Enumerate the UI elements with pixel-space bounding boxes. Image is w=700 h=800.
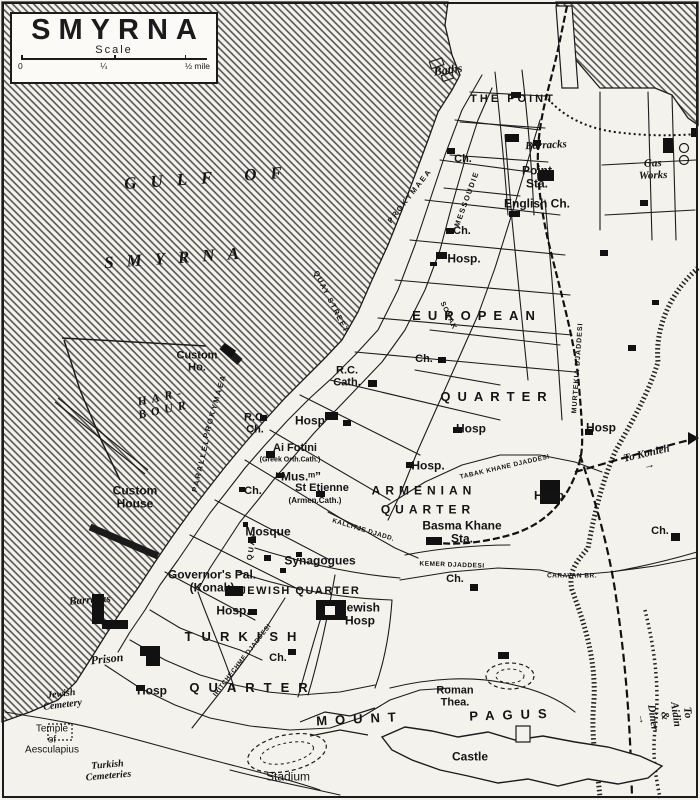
synagogues-label: Synagogues (284, 555, 355, 568)
pagus-label: PAGUS (469, 707, 555, 724)
tabak-khane-street-label: TABAK KHANE DJADDESI (459, 454, 550, 481)
european-quarter-label: QUARTER (440, 390, 553, 404)
custom-house-label: Custom House (113, 484, 158, 509)
church-2-label: Ch. (453, 226, 471, 238)
church-5-label: Ch. (651, 526, 669, 538)
turkish-label: TURKISH (185, 630, 306, 644)
hospital-8-label: Hosp (137, 685, 167, 698)
to-konieh-label: To Konieh → (620, 443, 676, 477)
prokymaea-south-street-label: PROKYMAEA (202, 373, 228, 439)
title-box: SMYRNA Scale 0 ¼ ½ mile (10, 12, 218, 84)
scale-tick-zero: 0 (18, 62, 23, 71)
barracks-point-label: Barracks (525, 139, 567, 153)
temple-aesculapius-label: Temple of Aesculapius (25, 724, 79, 756)
hospital-3-label: Hosp (456, 423, 486, 436)
jewish-hospital-label: Jewish Hosp (340, 601, 380, 626)
mosque-label: Mosque (245, 526, 290, 539)
hospital-2-label: Hosp (295, 415, 325, 428)
sokak-street-label: SOKAK (438, 301, 457, 332)
rc-church-label: R.C. Ch. (244, 412, 266, 435)
church-3-label: Ch. (415, 354, 433, 366)
kemer-street-label: KEMER DJADDESI (419, 561, 484, 570)
turkish-cemeteries-label: Turkish Cemeteries (84, 759, 131, 784)
museum-label: “Mus.ᵐ” (275, 471, 321, 484)
barracks-left-label: Barracks (69, 594, 111, 608)
custom-ho-label: Custom Ho. (177, 350, 218, 373)
armenian-label: ARMENIAN (372, 485, 477, 498)
armenian-quarter-label: QUARTER (381, 504, 475, 517)
basma-khane-label: Basma Khane Sta. (422, 519, 501, 544)
smyrna-map: GULF OFSMYRNABathsTHE POINTBarracksCh.Po… (0, 0, 700, 800)
turkish-quarter-label: QUARTER (189, 681, 316, 695)
church-point-label: Ch. (454, 154, 472, 166)
st-etienne-label: St Etienne (295, 483, 349, 495)
harbour-label: HAR- BOUR (134, 385, 191, 421)
hospital-6-label: Hosp (534, 490, 564, 503)
baths-label: Baths (433, 62, 463, 78)
castle-label: Castle (452, 751, 488, 764)
prison-label: Prison (90, 651, 124, 667)
scale-ticks: 0 ¼ ½ mile (18, 62, 210, 71)
church-6-label: Ch. (269, 653, 287, 665)
quay-street-vertical-label: QUAY (246, 531, 259, 561)
murtekia-street-label: MURTEKIA DJADDESI (571, 322, 585, 413)
prokymaea-north-street-label: PROKYMAEA (386, 167, 433, 224)
roman-theatre-label: Roman Thea. (436, 685, 473, 708)
church-7-label: Ch. (446, 574, 464, 586)
gas-works-label: Gas Works (638, 158, 667, 182)
mount-label: MOUNT (316, 710, 404, 728)
stadium-label: Stadium (266, 771, 310, 784)
scale-tick-half: ½ mile (185, 62, 210, 71)
rc-cathedral-label: R.C. Cath. (333, 365, 361, 388)
st-etienne-sub-label: (Armen.Cath.) (289, 497, 342, 505)
hospital-5-label: Hosp. (411, 460, 444, 473)
ai-fotini-sub-label: (Greek Orth.Cath.) (260, 456, 321, 463)
european-label: EUROPEAN (412, 309, 542, 323)
church-4-label: Ch. (244, 486, 262, 498)
governors-palace-label: Governor's Pal. (Konak) (168, 568, 256, 593)
english-church-label: English Ch. (504, 198, 570, 211)
quay-street-label: QUAY STREET (312, 269, 350, 334)
the-point-label: THE POINT (470, 94, 556, 106)
messoudie-street-label: MESSOUDIE (453, 170, 480, 228)
scale-bar (21, 58, 207, 63)
hospital-1-label: Hosp. (447, 253, 480, 266)
scale-tick-quarter: ¼ (100, 62, 107, 71)
gulf-of-label: GULF OF (124, 163, 297, 193)
to-aidin-label: To Aidin & Diner → (633, 694, 695, 738)
map-title: SMYRNA (23, 16, 205, 45)
gulf-smyrna-label: SMYRNA (104, 244, 253, 272)
point-station-label: Point Sta. (522, 164, 552, 189)
hospital-7-label: Hosp. (216, 605, 249, 618)
caravan-bridge-label: CARAVAN BR. (547, 574, 597, 581)
kallitje-street-label: KALLITJE DJADD. (331, 518, 395, 543)
label-layer: GULF OFSMYRNABathsTHE POINTBarracksCh.Po… (0, 0, 700, 800)
iritchechme-street-label: IRITCHECHME DJADDESI (213, 624, 274, 699)
jewish-quarter-label: JEWISH QUARTER (240, 586, 361, 598)
ai-fotini-label: Ai Fotini (273, 443, 317, 455)
jewish-cemetery-label: Jewish Cemetery (41, 687, 82, 713)
parallel-street-label: PARALLEL (191, 437, 211, 493)
hospital-4-label: Hosp (586, 422, 616, 435)
